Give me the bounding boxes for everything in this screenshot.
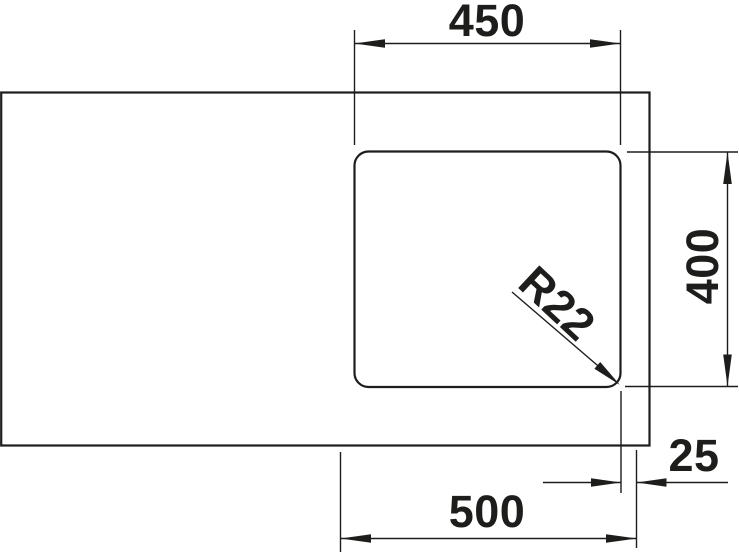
arrowhead-left-icon [637, 478, 667, 487]
dimension-edge-offset: 25 [543, 430, 728, 487]
arrowhead-up-icon [723, 152, 732, 184]
dimension-top-width: 450 [355, 0, 621, 145]
radius-callout: R22 [509, 256, 620, 385]
arrowhead-down-icon [723, 355, 732, 387]
leader-arrowhead-icon [594, 362, 620, 385]
dimension-label-top-width: 450 [449, 0, 526, 46]
arrowhead-left-icon [355, 39, 386, 48]
dimension-right-depth: 400 [625, 152, 738, 387]
dimension-label-edge-offset: 25 [668, 430, 719, 481]
sink-dimension-drawing: 450 400 500 25 [0, 0, 739, 553]
dimension-label-right-depth: 400 [677, 228, 728, 305]
dimension-label-outer-width: 500 [449, 486, 526, 537]
arrowhead-right-icon [591, 478, 621, 487]
dimension-bottom-outer-width: 500 [341, 450, 637, 552]
technical-drawing-page: 450 400 500 25 [0, 0, 739, 553]
arrowhead-right-icon [590, 39, 621, 48]
arrowhead-right-icon [606, 534, 637, 543]
arrowhead-left-icon [341, 534, 372, 543]
dimension-label-corner-radius: R22 [509, 256, 605, 351]
